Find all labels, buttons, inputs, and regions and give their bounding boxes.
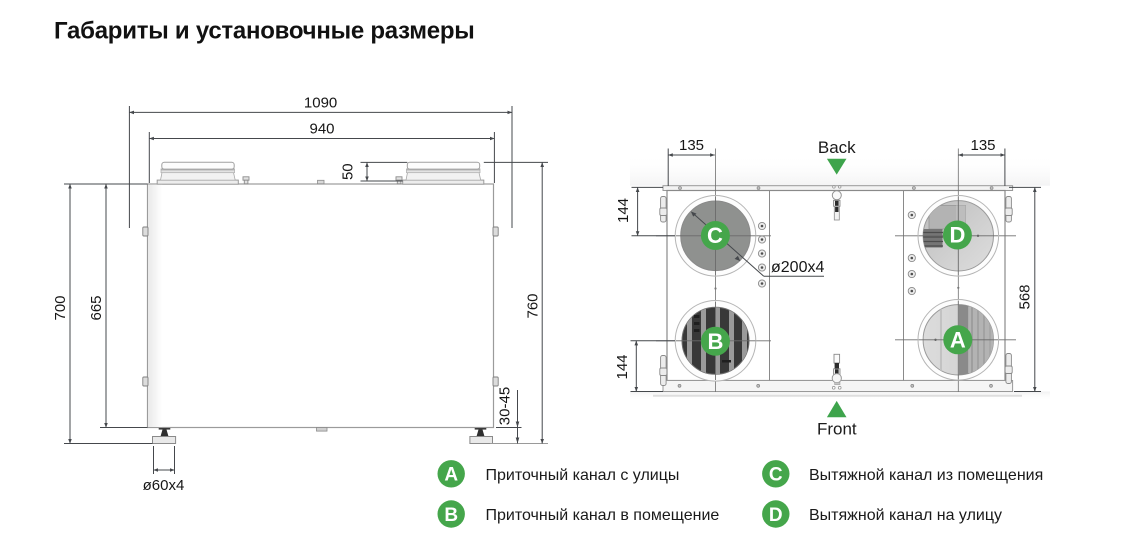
svg-text:940: 940 [309,121,334,138]
svg-text:30-45: 30-45 [497,387,514,425]
svg-text:665: 665 [88,295,105,320]
svg-text:B: B [444,505,458,526]
svg-text:Габариты и установочные размер: Габариты и установочные размеры [54,18,475,45]
svg-text:Приточный канал в помещение: Приточный канал в помещение [486,507,720,524]
svg-text:C: C [707,223,723,248]
svg-text:C: C [769,465,783,486]
svg-text:1090: 1090 [304,95,337,112]
svg-text:B: B [707,329,723,354]
svg-text:700: 700 [52,295,69,320]
svg-text:Вытяжной канал из помещения: Вытяжной канал из помещения [809,467,1043,484]
svg-text:Back: Back [818,138,856,157]
svg-text:D: D [949,223,965,248]
svg-text:135: 135 [679,137,704,154]
svg-text:ø200x4: ø200x4 [771,259,824,276]
svg-text:568: 568 [1017,284,1034,309]
svg-text:A: A [950,328,966,353]
svg-text:50: 50 [340,163,357,180]
svg-text:ø60x4: ø60x4 [143,477,185,494]
svg-text:135: 135 [970,137,995,154]
svg-text:Приточный канал с улицы: Приточный канал с улицы [486,467,680,484]
svg-text:760: 760 [525,293,542,318]
svg-text:144: 144 [614,354,631,379]
svg-text:D: D [769,505,783,526]
svg-text:A: A [444,465,458,486]
svg-text:144: 144 [615,198,632,223]
svg-text:Вытяжной канал на улицу: Вытяжной канал на улицу [809,507,1002,524]
svg-text:Front: Front [817,420,857,439]
